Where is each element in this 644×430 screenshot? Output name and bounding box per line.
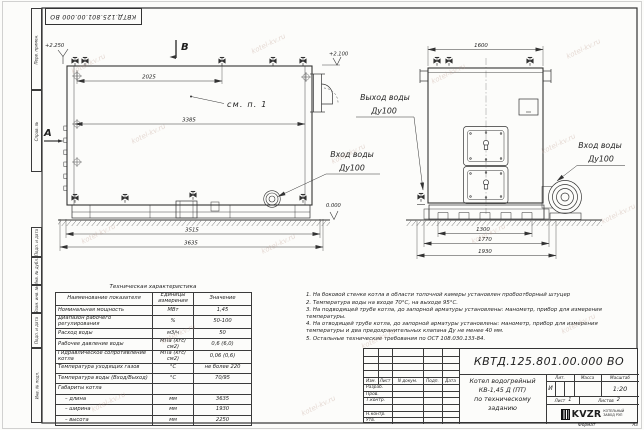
dim-2025: 2025 bbox=[142, 75, 156, 81]
dim-3515: 3515 bbox=[185, 228, 199, 234]
lower-door bbox=[464, 167, 509, 204]
valve-icon bbox=[72, 58, 78, 66]
spec-row: – ширинамм1930 bbox=[56, 405, 252, 415]
tb-sheet: Лист 1 bbox=[547, 396, 579, 404]
frame-cell-podp-data2: Подп. и дата bbox=[31, 313, 42, 348]
level-top-right: +2.100 bbox=[329, 52, 349, 58]
kvzr-logo-text: KVZR bbox=[572, 409, 602, 420]
front-view bbox=[356, 46, 625, 259]
tb-lit-label: Лит. bbox=[546, 374, 574, 381]
spec-row: – длинамм3635 bbox=[56, 394, 252, 404]
port-icon bbox=[301, 72, 311, 82]
fan-blower bbox=[542, 181, 582, 220]
spec-row: Диапазон рабочего регулирования%50-100 bbox=[56, 316, 252, 328]
level-zero: 0.000 bbox=[326, 203, 342, 209]
valve-icon bbox=[190, 192, 196, 200]
boiler-body-side bbox=[67, 66, 312, 205]
tb-sheets: Листов 2 bbox=[579, 396, 639, 404]
inlet-label-side-2: Ду100 bbox=[338, 164, 365, 173]
spec-col-value: Значение bbox=[194, 293, 252, 306]
valve-icon bbox=[300, 58, 306, 66]
note-2: 2. Температура воды на входе 70°С, на вы… bbox=[306, 300, 637, 307]
dim-1930: 1930 bbox=[478, 249, 492, 255]
spec-col-name: Наименование показателя bbox=[56, 293, 153, 306]
valve-icon bbox=[72, 195, 78, 203]
kvzr-logo-icon bbox=[561, 409, 570, 420]
section-b-arrow bbox=[170, 40, 177, 59]
dim-1770: 1770 bbox=[478, 237, 492, 243]
valve-icon bbox=[219, 58, 225, 66]
note-5: 5. Остальные технические требования по О… bbox=[306, 336, 637, 343]
spec-row: Температура воды (Вход/Выход)°С70/95 bbox=[56, 373, 252, 383]
inlet-label-front-1: Вход воды bbox=[578, 141, 622, 150]
inlet-leader-front bbox=[557, 166, 625, 182]
valve-icon bbox=[82, 58, 88, 66]
valve-icon bbox=[122, 195, 128, 203]
kvzr-logo-subtext: КОТЕЛЬНЫЙ ЗАВОД РЭП bbox=[603, 410, 624, 417]
tb-row-tkontr: Т.контр. bbox=[366, 397, 385, 404]
level-marks bbox=[58, 49, 341, 220]
drawing-sheet: +2.250 +2.100 0.000 В А 2025 3385 3515 3… bbox=[0, 0, 644, 430]
outlet-duct bbox=[310, 74, 338, 112]
product-line-2: КВ-1,45 Д (ПТ) bbox=[459, 386, 546, 395]
spec-row: Номинальная мощностьМВт1,45 bbox=[56, 306, 252, 316]
upper-door bbox=[464, 127, 509, 166]
spec-table-title: Техническая характеристика bbox=[55, 284, 251, 290]
inlet-label-front-2: Ду100 bbox=[587, 155, 614, 164]
product-line-1: Котел водогрейный bbox=[459, 377, 546, 386]
dim-3385: 3385 bbox=[182, 118, 196, 124]
frame-cell-sprav-no: Справ. № bbox=[31, 90, 42, 172]
section-b-label: В bbox=[181, 42, 189, 53]
dim-1300: 1300 bbox=[476, 227, 490, 233]
outlet-label-1: Выход воды bbox=[360, 93, 410, 102]
valve-icon bbox=[446, 58, 452, 66]
side-view bbox=[44, 40, 380, 251]
spec-row: Расход водым3/ч50 bbox=[56, 328, 252, 338]
spec-row: – высотамм2250 bbox=[56, 415, 252, 425]
view-a-label: А bbox=[43, 128, 52, 139]
valve-icon bbox=[527, 58, 533, 66]
level-top-left: +2.250 bbox=[45, 43, 65, 49]
tb-mass-label: Масса bbox=[574, 374, 601, 381]
note-4: 4. На отводящей трубе котла, до запорной… bbox=[306, 321, 637, 334]
format-note: Формат А3 bbox=[578, 423, 638, 428]
tb-row-razrab: Разраб. bbox=[366, 384, 383, 391]
frame-cell-vzam-inv: Взам. инв. № bbox=[31, 285, 42, 313]
tb-lit-value: И bbox=[546, 381, 555, 396]
tb-scale-value: 1:20 bbox=[601, 381, 639, 396]
tb-col-dokum: N докум. bbox=[392, 377, 423, 384]
product-line-3: по техническому заданию bbox=[459, 395, 546, 413]
product-name: Котел водогрейный КВ-1,45 Д (ПТ) по техн… bbox=[459, 374, 546, 424]
spec-col-units: Единицы измерения bbox=[153, 293, 194, 306]
valve-icon bbox=[300, 195, 306, 203]
inlet-label-side-1: Вход воды bbox=[330, 150, 374, 159]
frame-cell-podp-data1: Подп. и дата bbox=[31, 227, 42, 257]
doc-number: КВТД.125.801.00.000 ВО bbox=[459, 349, 639, 374]
technical-notes: 1. На боковой стенке котла в области топ… bbox=[306, 292, 637, 343]
title-block: Изм. Лист N докум. Подп. Дата Разраб. Пр… bbox=[363, 348, 638, 423]
spec-row: Рабочее давление водыМПа (кгс/см2)0,6 (6… bbox=[56, 339, 252, 351]
dim-3635: 3635 bbox=[184, 241, 198, 247]
callout-see-note: см. п. 1 bbox=[227, 100, 268, 109]
frame-cell-inv-podl: Инв. № подл. bbox=[31, 348, 42, 423]
tb-row-utv: Утв. bbox=[366, 417, 375, 424]
valve-icon bbox=[434, 58, 440, 66]
tb-scale-label: Масштаб bbox=[601, 374, 639, 381]
spec-row: Температура уходящих газов°Сне более 220 bbox=[56, 363, 252, 373]
base-frame-side bbox=[72, 201, 310, 218]
inverted-doc-number-stamp: КВТД.125.801.00.000 ВО bbox=[45, 8, 142, 25]
dim-1600: 1600 bbox=[474, 43, 488, 49]
frame-cell-inv-dubl: Инв. № дубл. bbox=[31, 257, 42, 285]
spec-row: Гидравлическое сопротивление котлаМПа (к… bbox=[56, 351, 252, 363]
spec-table: Наименование показателя Единицы измерени… bbox=[55, 292, 252, 426]
sight-glass bbox=[519, 99, 538, 115]
valve-icon bbox=[270, 58, 276, 66]
tb-col-data: Дата bbox=[442, 377, 459, 384]
view-a-arrow bbox=[44, 139, 64, 142]
callout-leader bbox=[190, 96, 224, 104]
port-icon bbox=[72, 157, 82, 167]
note-1: 1. На боковой стенке котла в области топ… bbox=[306, 292, 637, 299]
valve-icon bbox=[418, 194, 424, 202]
spec-header-row: Наименование показателя Единицы измерени… bbox=[56, 293, 252, 306]
tb-col-list: Лист bbox=[378, 377, 392, 384]
spec-row: Габариты котла bbox=[56, 384, 252, 394]
side-nozzles bbox=[420, 69, 551, 83]
tb-col-podp: Подп. bbox=[423, 377, 442, 384]
base-frame-front bbox=[424, 205, 549, 219]
kvzr-logo: KVZR КОТЕЛЬНЫЙ ЗАВОД РЭП bbox=[546, 404, 639, 424]
frame-cell-perv-primen: Перв. примен. bbox=[31, 8, 42, 90]
tb-col-izm: Изм. bbox=[364, 377, 378, 384]
outlet-label-2: Ду100 bbox=[370, 107, 397, 116]
inlet-leader-side bbox=[278, 174, 380, 197]
note-3: 3. На подводящей трубе котла, до запорно… bbox=[306, 307, 637, 320]
